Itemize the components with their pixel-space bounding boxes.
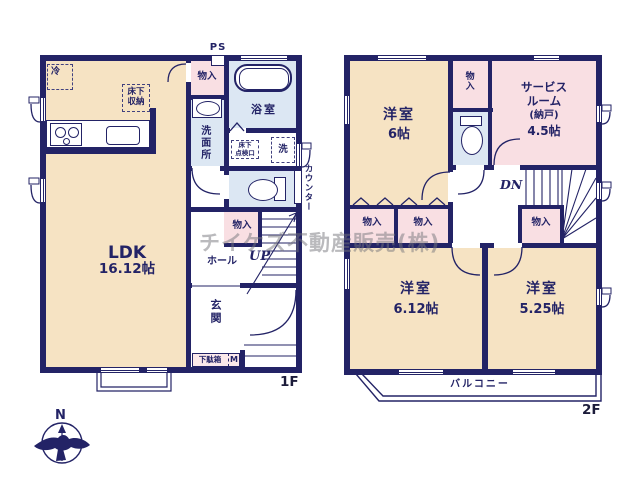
window (240, 55, 288, 61)
entrance-label: 玄関 (208, 299, 221, 325)
door-gap (192, 166, 220, 171)
bedroom1-name: 洋室 (369, 107, 429, 124)
compass-north-label: N (55, 408, 66, 423)
bedroom2-name: 洋室 (384, 281, 448, 298)
casement-arc (31, 104, 40, 122)
wall (518, 205, 522, 247)
window (40, 97, 46, 122)
floorplan-canvas: PS LDK 16.12帖 物入 浴室 洗面所 床下収納 冷 床下点検口 洗 カ… (0, 0, 640, 480)
refrigerator-label: 冷 (51, 67, 60, 78)
window (344, 95, 350, 125)
wall (560, 205, 564, 247)
floor-storage-label: 床下収納 (123, 87, 149, 107)
ps-label: PS (206, 42, 230, 54)
room-ldk (46, 61, 186, 367)
window (146, 367, 168, 373)
floor1-label: 1F (280, 375, 299, 391)
counter-niche (294, 170, 302, 204)
bathroom-label: 浴室 (246, 104, 282, 117)
ldk-size: 16.12帖 (77, 262, 177, 278)
closet-label: 物入 (463, 71, 474, 91)
washroom-label: 洗面所 (198, 125, 210, 161)
wall (186, 207, 296, 212)
window (512, 369, 556, 375)
meter-label: M (228, 355, 240, 364)
wall (350, 205, 453, 209)
door-gap (448, 172, 453, 202)
toilet-bowl-2f (461, 126, 483, 155)
door-gap (494, 165, 520, 170)
wall (448, 108, 493, 112)
closet-label: 物入 (188, 71, 226, 82)
window (398, 369, 444, 375)
window (596, 105, 602, 123)
window (40, 178, 46, 203)
laundry-label: 洗 (276, 144, 290, 155)
shoe-box-label: 下駄箱 (193, 356, 227, 365)
wall (448, 205, 453, 247)
window (344, 258, 350, 290)
bedroom1-size: 6帖 (369, 127, 429, 142)
stove-burner (55, 127, 66, 138)
wall (186, 61, 191, 367)
inspection-label: 床下点検口 (232, 142, 258, 157)
kitchen-wall (150, 108, 156, 154)
door-gap (494, 243, 522, 248)
casement-arc (602, 112, 610, 124)
balcony-label: バルコニー (430, 379, 530, 391)
toilet-tank-2f (460, 116, 482, 126)
bedroom2-size: 6.12帖 (381, 302, 451, 317)
wall (488, 61, 492, 166)
kitchen-wall (46, 148, 156, 154)
toilet-bowl-1f (248, 179, 278, 201)
door-gap (230, 128, 246, 133)
closet-label: 物入 (524, 217, 558, 228)
opening (192, 283, 240, 288)
window (296, 143, 302, 167)
compass-icon (34, 423, 90, 463)
wall (518, 205, 564, 209)
watermark: チイケズ不動産販売(株) (199, 227, 440, 257)
wall (482, 247, 488, 369)
door-gap (452, 243, 480, 248)
casement-arc (31, 185, 40, 203)
door-gap (456, 165, 484, 170)
door-gap (224, 175, 229, 199)
service-room-size: 4.5帖 (500, 124, 588, 138)
stairs-down-label: DN (500, 178, 522, 193)
window (596, 288, 602, 306)
bathtub-inner (239, 68, 289, 90)
counter-label: カウンター (303, 164, 313, 212)
bedroom3-size: 5.25帖 (507, 302, 577, 317)
service-room-sub: (納戸) (500, 110, 588, 122)
stove-burner (63, 138, 70, 145)
bedroom3-name: 洋室 (510, 281, 574, 298)
window (533, 55, 560, 61)
hall-label: ホール (200, 256, 244, 268)
casement-arc (602, 295, 610, 307)
window (100, 367, 140, 373)
washstand-bowl (196, 101, 220, 116)
window (377, 55, 427, 61)
window (596, 182, 602, 200)
floor2-label: 2F (582, 403, 601, 419)
casement-arc (602, 189, 610, 201)
service-room-label: サービスルーム (500, 81, 588, 108)
pipe-space-box (211, 55, 225, 66)
kitchen-sink (106, 126, 140, 145)
stove-burner (68, 127, 79, 138)
porch (97, 373, 171, 391)
